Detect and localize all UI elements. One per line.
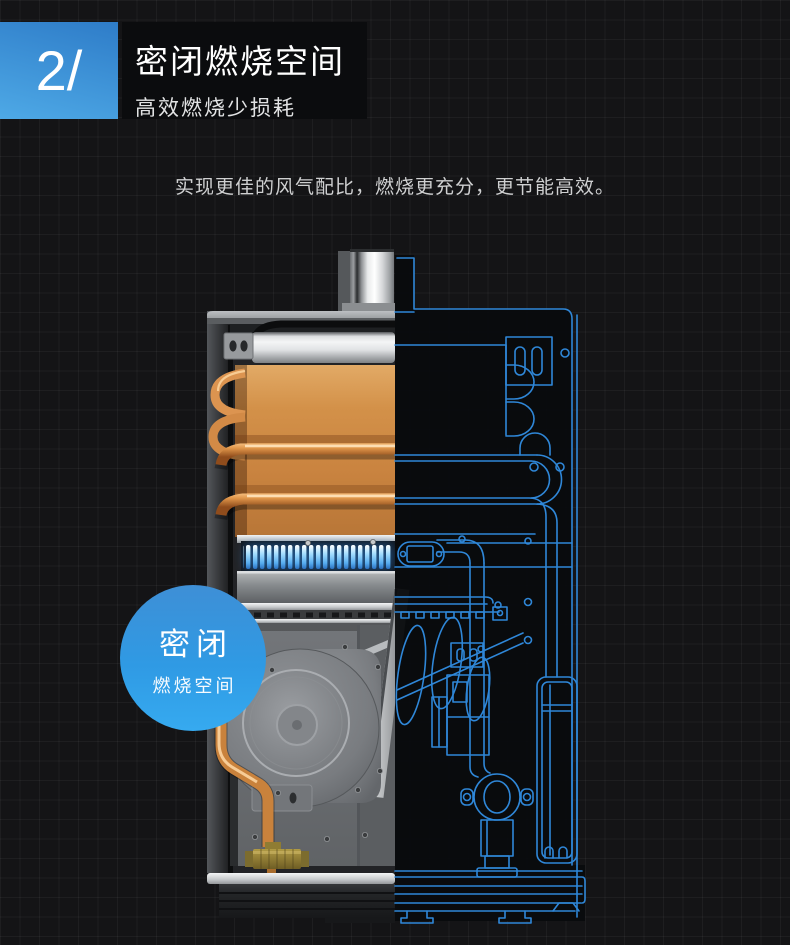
exhaust-collar	[342, 303, 395, 312]
tank-chrome-band	[252, 332, 395, 363]
exhaust-pipe	[350, 249, 394, 311]
exhaust-pipe-outer	[338, 251, 350, 311]
heater-blueprint-half	[391, 255, 585, 923]
burner-flames	[243, 545, 392, 569]
feature-badge: 密闭 燃烧空间	[120, 585, 266, 731]
base-trim	[207, 873, 395, 884]
screw	[370, 539, 375, 544]
heater-photo-half	[207, 249, 402, 923]
burner-box	[237, 571, 395, 603]
screw	[305, 540, 310, 545]
heater-cutaway-illustration: 密闭 燃烧空间	[0, 0, 790, 940]
feature-badge-title: 密闭	[153, 619, 233, 664]
mounting-bracket	[224, 333, 253, 359]
feature-badge-subtitle: 燃烧空间	[150, 672, 237, 698]
base-foot	[325, 918, 395, 923]
page: { "theme": { "page-bg": "#141416", "pane…	[0, 0, 790, 940]
